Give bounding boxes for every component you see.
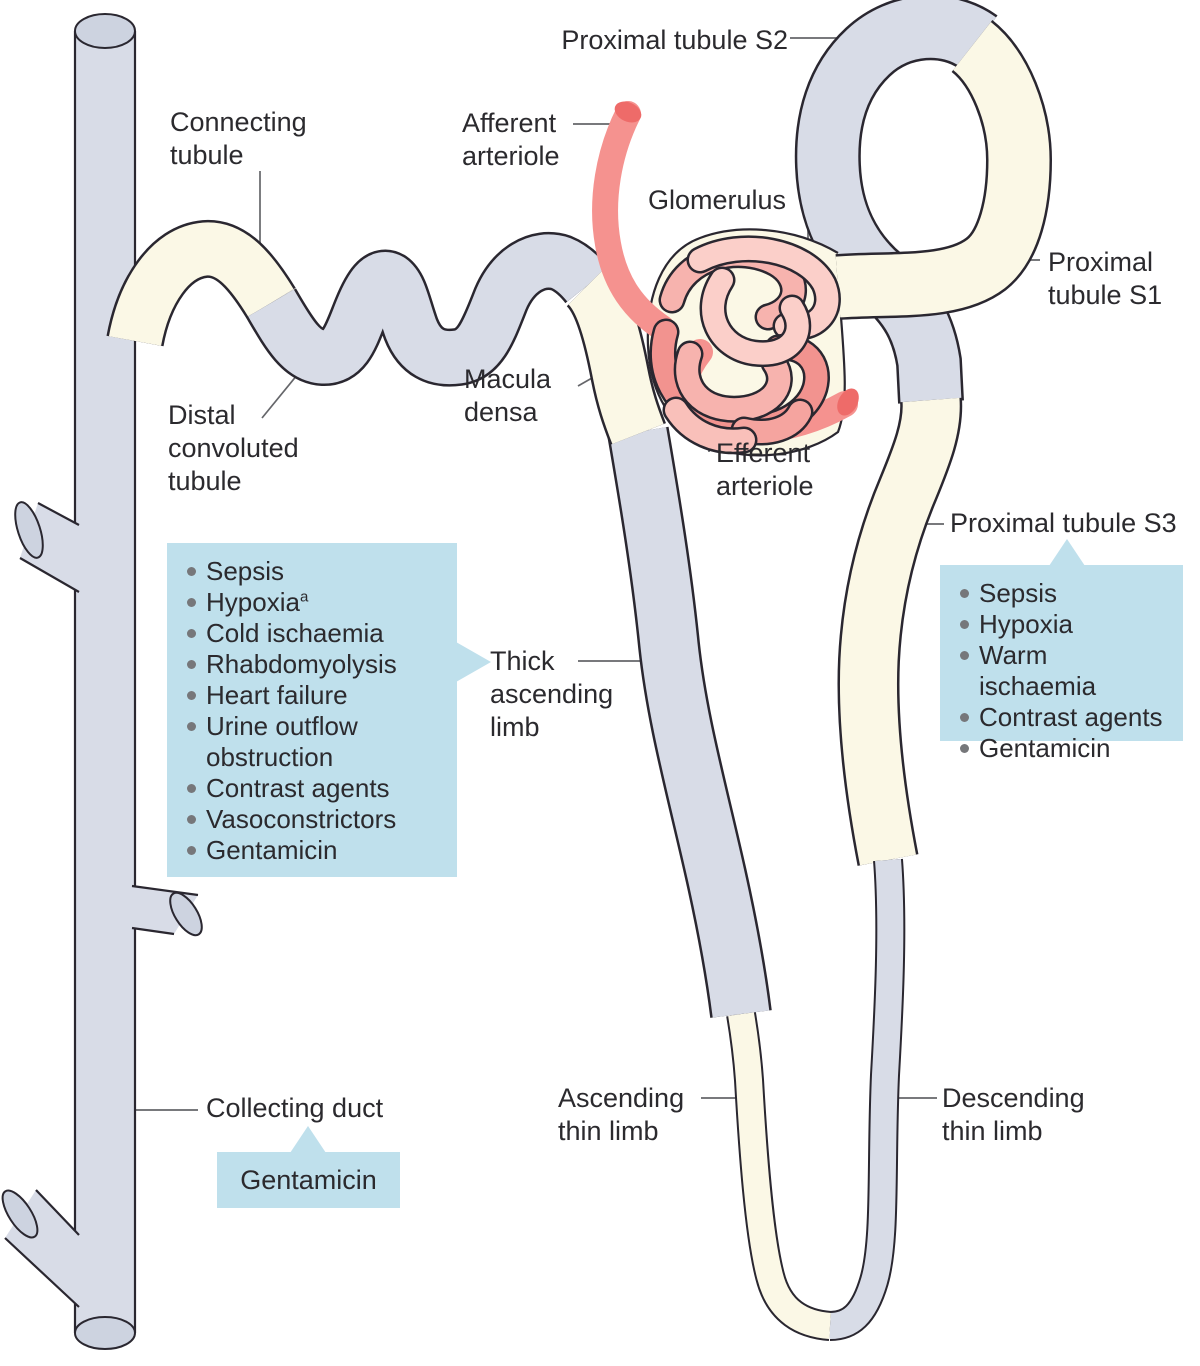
bullet-icon [187, 815, 196, 824]
bullet-icon [187, 598, 196, 607]
cause-item: Cold ischaemia [185, 618, 443, 649]
connecting-tubule-tube [135, 249, 271, 341]
proximal-tubule-s2-tube [828, 27, 978, 402]
duct-branch-upper [10, 499, 79, 592]
nephron-injury-diagram: Proximal tubule S2 Afferent arteriole Gl… [0, 0, 1200, 1366]
ascending-thin-limb-tube [741, 1014, 830, 1326]
duct-branch-right [132, 886, 208, 940]
cause-item: Hypoxia [958, 609, 1169, 640]
bullet-icon [960, 589, 969, 598]
label-macula-densa: Macula densa [464, 363, 584, 429]
collecting-duct-bottom-cap [75, 1317, 135, 1349]
distal-convoluted-tubule-tube [271, 261, 588, 358]
label-glomerulus: Glomerulus [648, 184, 786, 217]
cause-item: Gentamicin [958, 733, 1169, 764]
proximal-tubule-s3-tube [868, 400, 931, 860]
cause-item: Sepsis [185, 556, 443, 587]
cause-item: Vasoconstrictors [185, 804, 443, 835]
bullet-icon [187, 722, 196, 731]
label-descending-thin-limb: Descending thin limb [942, 1082, 1107, 1148]
cause-item: Rhabdomyolysis [185, 649, 443, 680]
thick-ascending-limb-causes-box: SepsisHypoxiaaCold ischaemiaRhabdomyolys… [167, 543, 457, 877]
label-proximal-tubule-s1: Proximal tubule S1 [1048, 246, 1188, 312]
label-distal-convoluted-tubule: Distal convoluted tubule [168, 399, 348, 498]
cause-item: Heart failure [185, 680, 443, 711]
bullet-icon [187, 660, 196, 669]
bullet-icon [187, 691, 196, 700]
bullet-icon [960, 713, 969, 722]
bullet-icon [960, 620, 969, 629]
bullet-icon [960, 651, 969, 660]
label-collecting-duct: Collecting duct [206, 1092, 383, 1125]
collecting-duct-causes-pointer [290, 1126, 326, 1153]
label-thick-ascending-limb: Thick ascending limb [490, 645, 630, 744]
collecting-duct-top-cap [75, 14, 135, 48]
label-afferent-arteriole: Afferent arteriole [462, 107, 574, 173]
cause-item: Contrast agents [185, 773, 443, 804]
proximal-tubule-s3-causes-pointer [1049, 539, 1085, 566]
duct-branch-lower [0, 1185, 79, 1307]
thick-ascending-limb-tube [638, 432, 741, 1014]
collecting-duct-cause-text: Gentamicin [217, 1165, 400, 1196]
cause-item: Hypoxiaa [185, 587, 443, 618]
label-efferent-arteriole: Efferent arteriole [716, 437, 836, 503]
label-proximal-tubule-s2: Proximal tubule S2 [528, 24, 788, 57]
bullet-icon [187, 629, 196, 638]
label-connecting-tubule: Connecting tubule [170, 106, 330, 172]
cause-item: Urine outflow obstruction [185, 711, 443, 773]
cause-item: Sepsis [958, 578, 1169, 609]
bullet-icon [187, 846, 196, 855]
cause-item: Gentamicin [185, 835, 443, 866]
bullet-icon [187, 567, 196, 576]
cause-item: Contrast agents [958, 702, 1169, 733]
label-proximal-tubule-s3: Proximal tubule S3 [950, 507, 1177, 540]
bullet-icon [187, 784, 196, 793]
thick-ascending-limb-causes-pointer [456, 642, 491, 682]
cause-item: Warm ischaemia [958, 640, 1169, 702]
bullet-icon [960, 744, 969, 753]
descending-thin-limb-tube [830, 860, 890, 1326]
proximal-tubule-s3-causes-box: SepsisHypoxiaWarm ischaemiaContrast agen… [940, 565, 1183, 741]
label-ascending-thin-limb: Ascending thin limb [558, 1082, 708, 1148]
